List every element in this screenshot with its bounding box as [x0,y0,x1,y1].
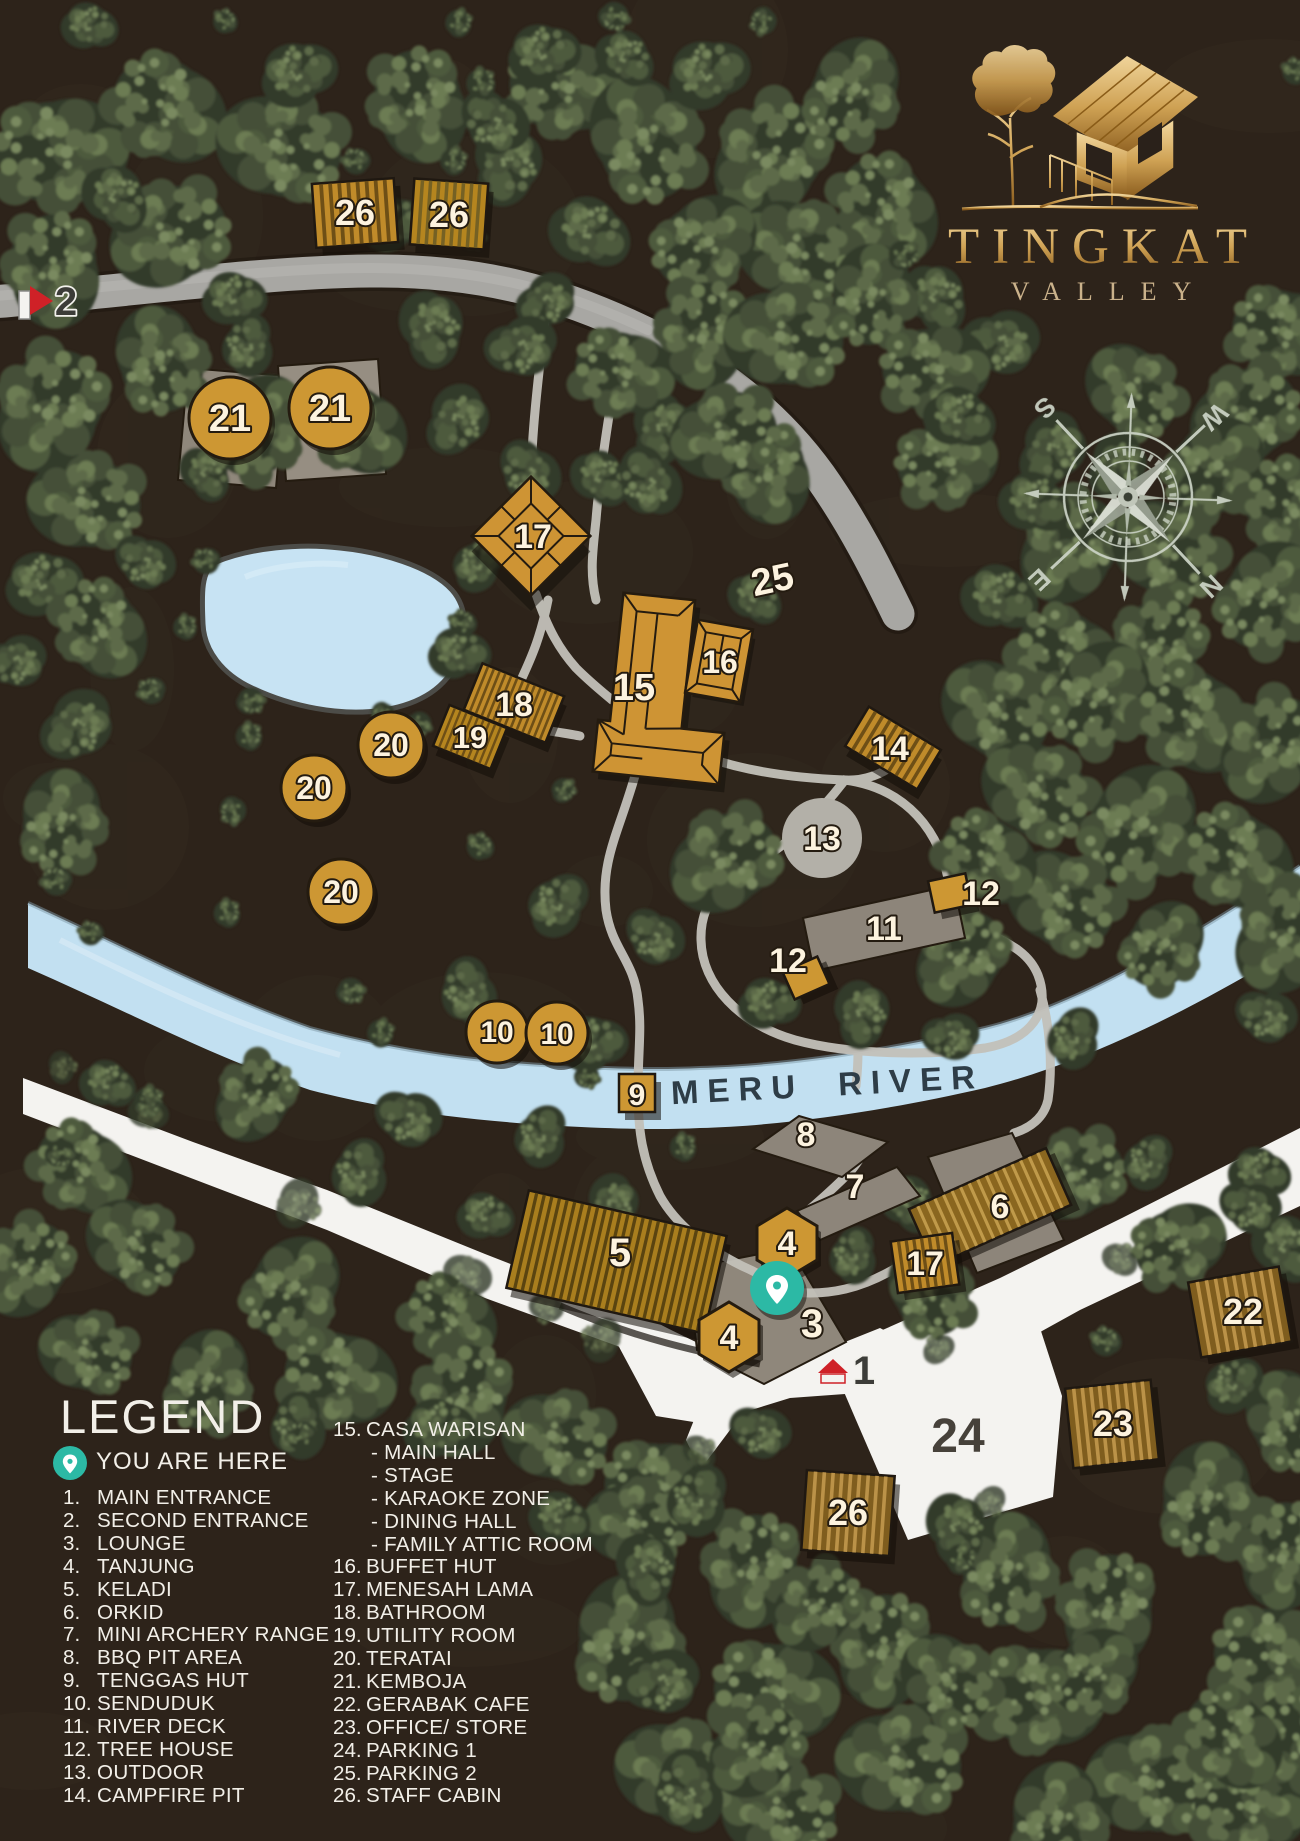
svg-text:ORKID: ORKID [97,1601,164,1624]
svg-text:16.: 16. [333,1555,362,1578]
svg-text:25: 25 [747,555,797,605]
svg-text:11.: 11. [63,1715,90,1738]
svg-text:SENDUDUK: SENDUDUK [97,1692,215,1715]
svg-text:12.: 12. [63,1738,92,1761]
svg-text:17: 17 [514,518,552,556]
svg-text:TINGKAT: TINGKAT [948,219,1260,275]
svg-text:10: 10 [540,1018,573,1051]
svg-text:25.: 25. [333,1762,362,1785]
svg-text:20.: 20. [333,1647,362,1670]
svg-text:13: 13 [803,820,841,858]
svg-text:24.: 24. [333,1739,362,1762]
svg-text:KEMBOJA: KEMBOJA [366,1670,467,1693]
svg-text:22.: 22. [333,1693,362,1716]
svg-text:5: 5 [609,1231,631,1275]
svg-text:MENESAH LAMA: MENESAH LAMA [366,1578,533,1601]
svg-text:14.: 14. [63,1784,92,1807]
svg-text:10: 10 [480,1016,513,1049]
svg-text:20: 20 [373,727,409,763]
svg-text:15.: 15. [333,1418,362,1441]
svg-text:26: 26 [335,192,375,233]
svg-text:YOU ARE HERE: YOU ARE HERE [96,1448,288,1475]
svg-text:23.: 23. [333,1716,362,1739]
svg-text:PARKING 2: PARKING 2 [366,1762,477,1785]
svg-text:7.: 7. [63,1623,80,1646]
svg-text:8.: 8. [63,1646,80,1669]
svg-text:OFFICE/ STORE: OFFICE/ STORE [366,1716,527,1739]
svg-text:MINI ARCHERY RANGE: MINI ARCHERY RANGE [97,1623,329,1646]
svg-text:- DINING HALL: - DINING HALL [371,1510,517,1533]
svg-text:6.: 6. [63,1601,80,1624]
svg-text:CASA WARISAN: CASA WARISAN [366,1418,526,1441]
svg-text:21.: 21. [333,1670,362,1693]
svg-text:2.: 2. [63,1509,80,1532]
svg-text:OUTDOOR: OUTDOOR [97,1761,204,1784]
svg-text:16: 16 [702,644,738,680]
svg-text:11: 11 [866,910,902,948]
svg-text:15: 15 [613,667,655,709]
svg-text:13.: 13. [63,1761,92,1784]
svg-text:SECOND ENTRANCE: SECOND ENTRANCE [97,1509,309,1532]
svg-text:MAIN ENTRANCE: MAIN ENTRANCE [97,1486,271,1509]
svg-text:26: 26 [429,194,469,235]
svg-text:4.: 4. [63,1555,80,1578]
svg-text:5.: 5. [63,1578,80,1601]
svg-text:21: 21 [209,398,251,440]
svg-text:KELADI: KELADI [97,1578,172,1601]
svg-text:UTILITY ROOM: UTILITY ROOM [366,1624,516,1647]
svg-text:TENGGAS HUT: TENGGAS HUT [97,1669,249,1692]
svg-text:17.: 17. [333,1578,362,1601]
svg-text:19: 19 [453,720,487,755]
svg-text:23: 23 [1093,1403,1133,1444]
svg-text:TREE HOUSE: TREE HOUSE [97,1738,234,1761]
svg-text:STAFF CABIN: STAFF CABIN [366,1784,502,1807]
svg-text:RIVER DECK: RIVER DECK [97,1715,226,1738]
svg-text:26.: 26. [333,1784,362,1807]
svg-text:BUFFET HUT: BUFFET HUT [366,1555,497,1578]
svg-text:7: 7 [846,1168,865,1206]
svg-text:21: 21 [309,388,351,430]
svg-text:TERATAI: TERATAI [366,1647,452,1670]
svg-text:9: 9 [629,1079,646,1112]
svg-text:12: 12 [962,875,1000,913]
svg-text:18: 18 [495,686,533,724]
svg-text:26: 26 [828,1492,868,1533]
svg-text:LEGEND: LEGEND [60,1390,265,1443]
svg-text:- STAGE: - STAGE [371,1464,454,1487]
svg-text:2: 2 [55,280,77,324]
svg-text:8: 8 [797,1116,816,1154]
svg-text:CAMPFIRE PIT: CAMPFIRE PIT [97,1784,245,1807]
svg-text:19.: 19. [333,1624,362,1647]
svg-text:1.: 1. [63,1486,80,1509]
svg-text:12: 12 [769,942,807,980]
svg-text:1: 1 [853,1349,875,1393]
svg-text:14: 14 [871,730,909,768]
svg-text:- FAMILY ATTIC ROOM: - FAMILY ATTIC ROOM [371,1533,593,1556]
svg-text:10.: 10. [63,1692,92,1715]
svg-text:PARKING 1: PARKING 1 [366,1739,477,1762]
svg-text:3.: 3. [63,1532,80,1555]
svg-text:22: 22 [1223,1291,1263,1332]
svg-text:17: 17 [906,1245,944,1283]
svg-text:VALLEY: VALLEY [1011,277,1208,306]
svg-text:LOUNGE: LOUNGE [97,1532,186,1555]
svg-text:TANJUNG: TANJUNG [97,1555,195,1578]
svg-text:BBQ PIT AREA: BBQ PIT AREA [97,1646,242,1669]
svg-text:20: 20 [296,770,332,806]
svg-text:4: 4 [778,1225,797,1263]
svg-text:- KARAOKE ZONE: - KARAOKE ZONE [371,1487,550,1510]
svg-text:GERABAK CAFE: GERABAK CAFE [366,1693,530,1716]
svg-text:20: 20 [323,874,359,910]
svg-text:- MAIN HALL: - MAIN HALL [371,1441,496,1464]
svg-text:18.: 18. [333,1601,362,1624]
svg-text:BATHROOM: BATHROOM [366,1601,486,1624]
svg-text:4: 4 [720,1319,739,1357]
svg-text:3: 3 [801,1302,823,1346]
svg-text:24: 24 [931,1410,985,1463]
svg-text:6: 6 [991,1188,1010,1226]
svg-text:9.: 9. [63,1669,80,1692]
